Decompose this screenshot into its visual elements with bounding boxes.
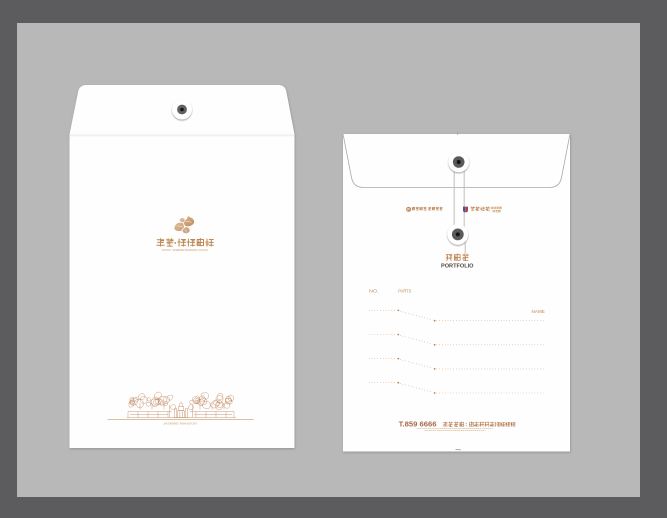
svg-text:PARTS: PARTS <box>398 289 411 294</box>
svg-text:JASMINE MANSION: JASMINE MANSION <box>172 248 198 252</box>
svg-text:NAME: NAME <box>532 309 545 314</box>
svg-text:NO.: NO. <box>369 289 379 294</box>
svg-text:T.859 6666: T.859 6666 <box>399 419 437 428</box>
svg-text:PORTFOLIO: PORTFOLIO <box>441 263 474 269</box>
svg-text:JASMINE MANSION: JASMINE MANSION <box>163 422 197 426</box>
